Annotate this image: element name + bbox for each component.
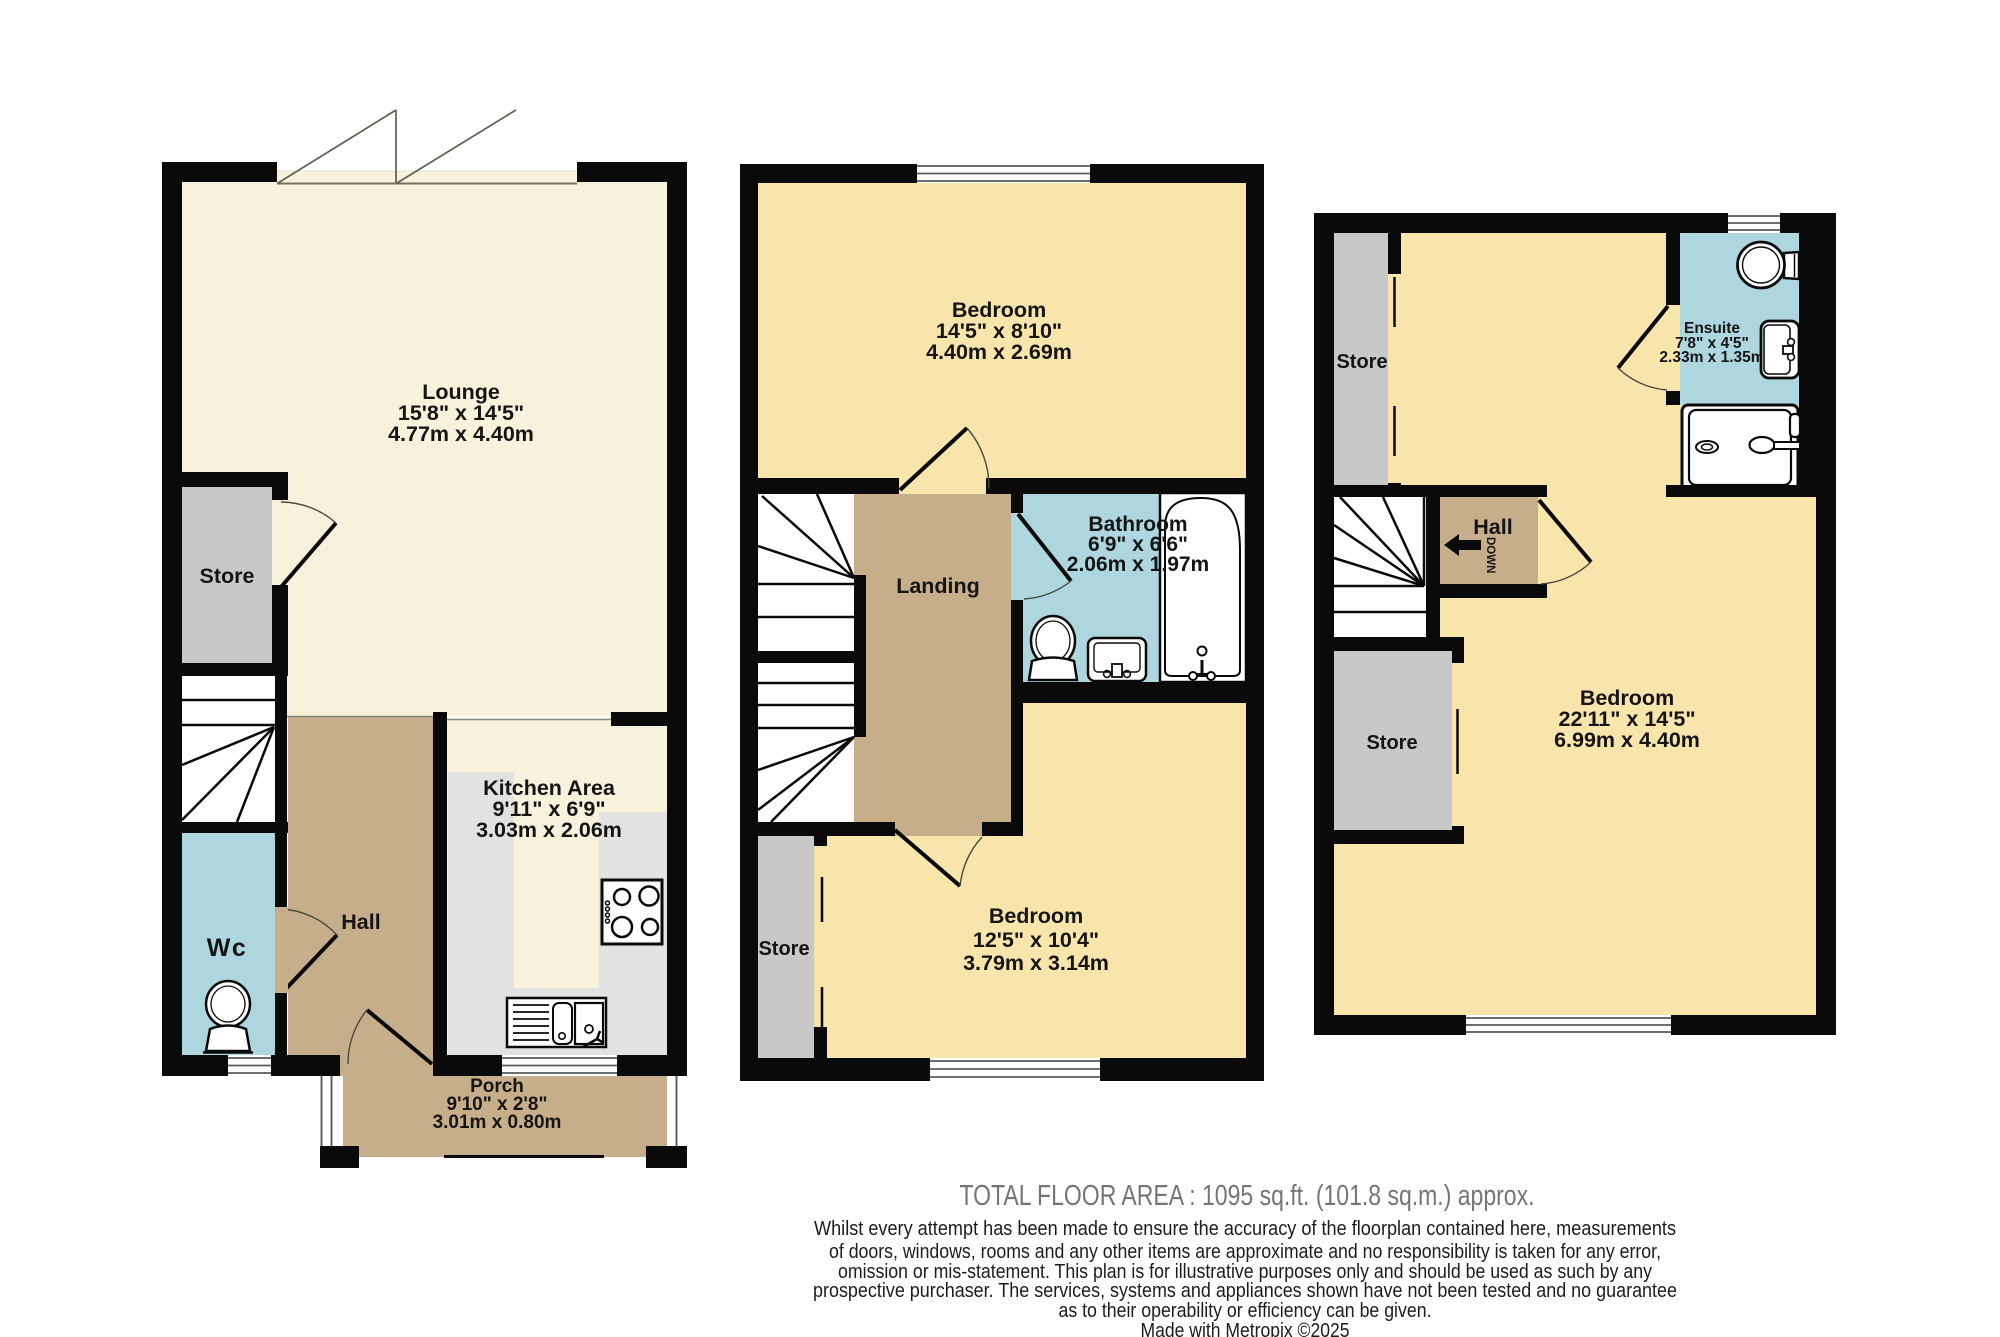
svg-text:Store: Store (200, 564, 255, 588)
svg-text:Made with Metropix ©2025: Made with Metropix ©2025 (1141, 1319, 1350, 1337)
svg-text:3.01m x 0.80m: 3.01m x 0.80m (433, 1112, 562, 1133)
svg-text:Whilst every attempt has been: Whilst every attempt has been made to en… (814, 1217, 1676, 1240)
svg-text:4.77m x 4.40m: 4.77m x 4.40m (388, 422, 534, 446)
svg-text:2.06m x 1.97m: 2.06m x 1.97m (1067, 553, 1209, 576)
svg-text:Store: Store (1366, 732, 1417, 754)
svg-text:12'5" x 10'4": 12'5" x 10'4" (973, 928, 1099, 952)
svg-text:3.79m x 3.14m: 3.79m x 3.14m (963, 951, 1109, 975)
svg-text:4.40m x 2.69m: 4.40m x 2.69m (926, 340, 1072, 364)
svg-text:3.03m x 2.06m: 3.03m x 2.06m (476, 818, 622, 842)
svg-text:Bedroom: Bedroom (989, 904, 1083, 928)
svg-text:Store: Store (1336, 351, 1387, 373)
svg-text:Wc: Wc (207, 934, 248, 962)
svg-text:TOTAL FLOOR AREA : 1095 sq.ft.: TOTAL FLOOR AREA : 1095 sq.ft. (101.8 sq… (960, 1180, 1535, 1212)
svg-text:Landing: Landing (896, 574, 980, 598)
svg-text:Store: Store (758, 938, 809, 960)
svg-text:2.33m x 1.35m: 2.33m x 1.35m (1659, 349, 1764, 366)
svg-text:6.99m x 4.40m: 6.99m x 4.40m (1554, 728, 1700, 752)
svg-text:Hall: Hall (341, 910, 380, 934)
svg-text:DOWN: DOWN (1484, 537, 1496, 573)
svg-text:Hall: Hall (1473, 515, 1512, 539)
